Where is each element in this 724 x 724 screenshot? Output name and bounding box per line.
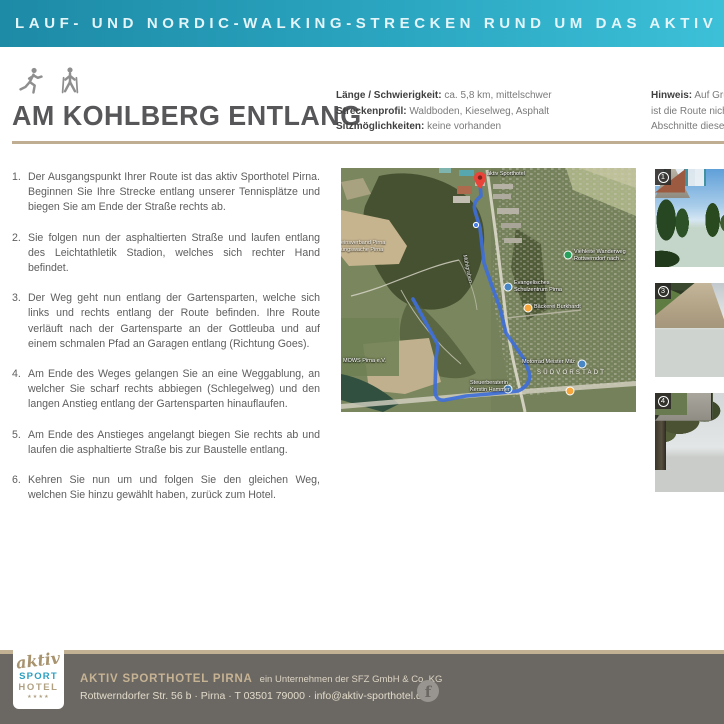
- step-number: 3.: [12, 291, 28, 352]
- footer-contact: AKTIV SPORTHOTEL PIRNA ein Unternehmen d…: [80, 673, 442, 702]
- step-text: Kehren Sie nun um und folgen Sie den gle…: [28, 473, 320, 503]
- fact-value: Waldboden, Kieselweg, Asphalt: [409, 106, 549, 117]
- motorcycle-poi-icon: [578, 360, 586, 368]
- map-label-edge-fragment: einsverband Pirna ungswache Pirna: [341, 240, 385, 254]
- direction-step-5: 5. Am Ende des Anstieges angelangt biege…: [12, 428, 320, 458]
- fact-row-seating: Sitzmöglichkeiten: keine vorhanden: [336, 119, 636, 135]
- facebook-icon[interactable]: f: [417, 680, 439, 702]
- hinweis-line: ist die Route nicht: [651, 104, 724, 120]
- photo-number: 3: [658, 286, 669, 297]
- logo-sport-text: SPORT: [19, 671, 58, 682]
- address-line: Rottwerndorfer Str. 56 b · Pirna · T 035…: [80, 690, 442, 702]
- divider-rule: [12, 141, 724, 144]
- hinweis-line: Hinweis: Auf Grun: [651, 88, 724, 104]
- fact-value: keine vorhanden: [427, 121, 501, 132]
- bakery-poi-icon: [524, 304, 532, 312]
- step-number: 5.: [12, 428, 28, 458]
- step-text: Am Ende des Weges gelangen Sie an eine W…: [28, 367, 320, 413]
- photo-badge: 4: [655, 393, 671, 409]
- direction-step-4: 4. Am Ende des Weges gelangen Sie an ein…: [12, 367, 320, 413]
- logo-stars: ★★★★: [27, 694, 50, 700]
- route-title: AM KOHLBERG ENTLANG: [12, 100, 362, 132]
- map-label-district: SÜDVORSTADT: [537, 370, 606, 377]
- page-header-banner: LAUF- UND NORDIC-WALKING-STRECKEN RUND U…: [0, 0, 724, 47]
- fact-row-profile: Streckenprofil: Waldboden, Kieselweg, As…: [336, 104, 636, 120]
- flyer-page: LAUF- UND NORDIC-WALKING-STRECKEN RUND U…: [0, 0, 724, 724]
- map-label-school: Evangelisches Schulzentrum Pirna: [514, 280, 562, 294]
- step-text: Am Ende des Anstieges angelangt biegen S…: [28, 428, 320, 458]
- step-number: 4.: [12, 367, 28, 413]
- logo-hotel-text: HOTEL: [18, 682, 58, 693]
- route-map: aktiv Sporthotel Viehleite Wanderweg Rot…: [341, 168, 636, 412]
- hinweis-line: Abschnitte dieser: [651, 119, 724, 135]
- route-facts: Länge / Schwierigkeit: ca. 5,8 km, mitte…: [336, 88, 636, 135]
- company-suffix: ein Unternehmen der SFZ GmbH & Co. KG: [260, 674, 443, 685]
- route-photo-4: 4: [655, 393, 724, 492]
- map-label-viehleite: Viehleite Wanderweg Rottwerndorf nach ..…: [574, 249, 626, 263]
- route-photo-1: 1: [655, 169, 724, 267]
- map-label-tax-advisor: Steuerberaterin Kerstin Hammer: [470, 380, 510, 394]
- direction-step-2: 2. Sie folgen nun der asphaltierten Stra…: [12, 231, 320, 277]
- hinweis-note: Hinweis: Auf Grun ist die Route nicht Ab…: [651, 88, 724, 135]
- step-number: 2.: [12, 231, 28, 277]
- route-photo-3: 3: [655, 283, 724, 377]
- hiking-poi-icon: [564, 251, 572, 259]
- map-label-hotel: aktiv Sporthotel: [487, 171, 525, 178]
- direction-step-1: 1. Der Ausgangspunkt Ihrer Route ist das…: [12, 170, 320, 216]
- orange-poi-icon: [566, 387, 574, 395]
- directions-list: 1. Der Ausgangspunkt Ihrer Route ist das…: [12, 170, 320, 518]
- fact-label: Länge / Schwierigkeit:: [336, 90, 442, 101]
- company-name: AKTIV SPORTHOTEL PIRNA: [80, 673, 253, 685]
- fact-row-length: Länge / Schwierigkeit: ca. 5,8 km, mitte…: [336, 88, 636, 104]
- map-label-bakery: Bäckerei Burkhardt: [534, 304, 581, 311]
- step-number: 6.: [12, 473, 28, 503]
- page-header-title: LAUF- UND NORDIC-WALKING-STRECKEN RUND U…: [15, 15, 724, 32]
- photo-badge: 1: [655, 169, 671, 185]
- hinweis-label: Hinweis:: [651, 90, 692, 101]
- step-text: Sie folgen nun der asphaltierten Straße …: [28, 231, 320, 277]
- step-text: Der Weg geht nun entlang der Gartenspart…: [28, 291, 320, 352]
- fact-value: ca. 5,8 km, mittelschwer: [444, 90, 551, 101]
- map-label-motorcycle: Motorrad Meister Milz: [522, 359, 575, 366]
- school-poi-icon: [504, 283, 512, 291]
- map-label-mows: MOWS Pirna e.V.: [343, 358, 386, 365]
- photo-number: 1: [658, 172, 669, 183]
- step-text: Der Ausgangspunkt Ihrer Route ist das ak…: [28, 170, 320, 216]
- direction-step-6: 6. Kehren Sie nun um und folgen Sie den …: [12, 473, 320, 503]
- runner-icon: [16, 66, 46, 98]
- activity-icons: [16, 66, 85, 98]
- fact-label: Sitzmöglichkeiten:: [336, 121, 424, 132]
- nordic-walker-icon: [55, 66, 85, 98]
- route-point-marker: [473, 222, 478, 227]
- step-number: 1.: [12, 170, 28, 216]
- fact-label: Streckenprofil:: [336, 106, 407, 117]
- direction-step-3: 3. Der Weg geht nun entlang der Gartensp…: [12, 291, 320, 352]
- photo-badge: 3: [655, 283, 671, 299]
- photo-number: 4: [658, 396, 669, 407]
- hotel-logo: aktiv SPORT HOTEL ★★★★: [13, 643, 64, 709]
- logo-script-text: aktiv: [16, 650, 62, 671]
